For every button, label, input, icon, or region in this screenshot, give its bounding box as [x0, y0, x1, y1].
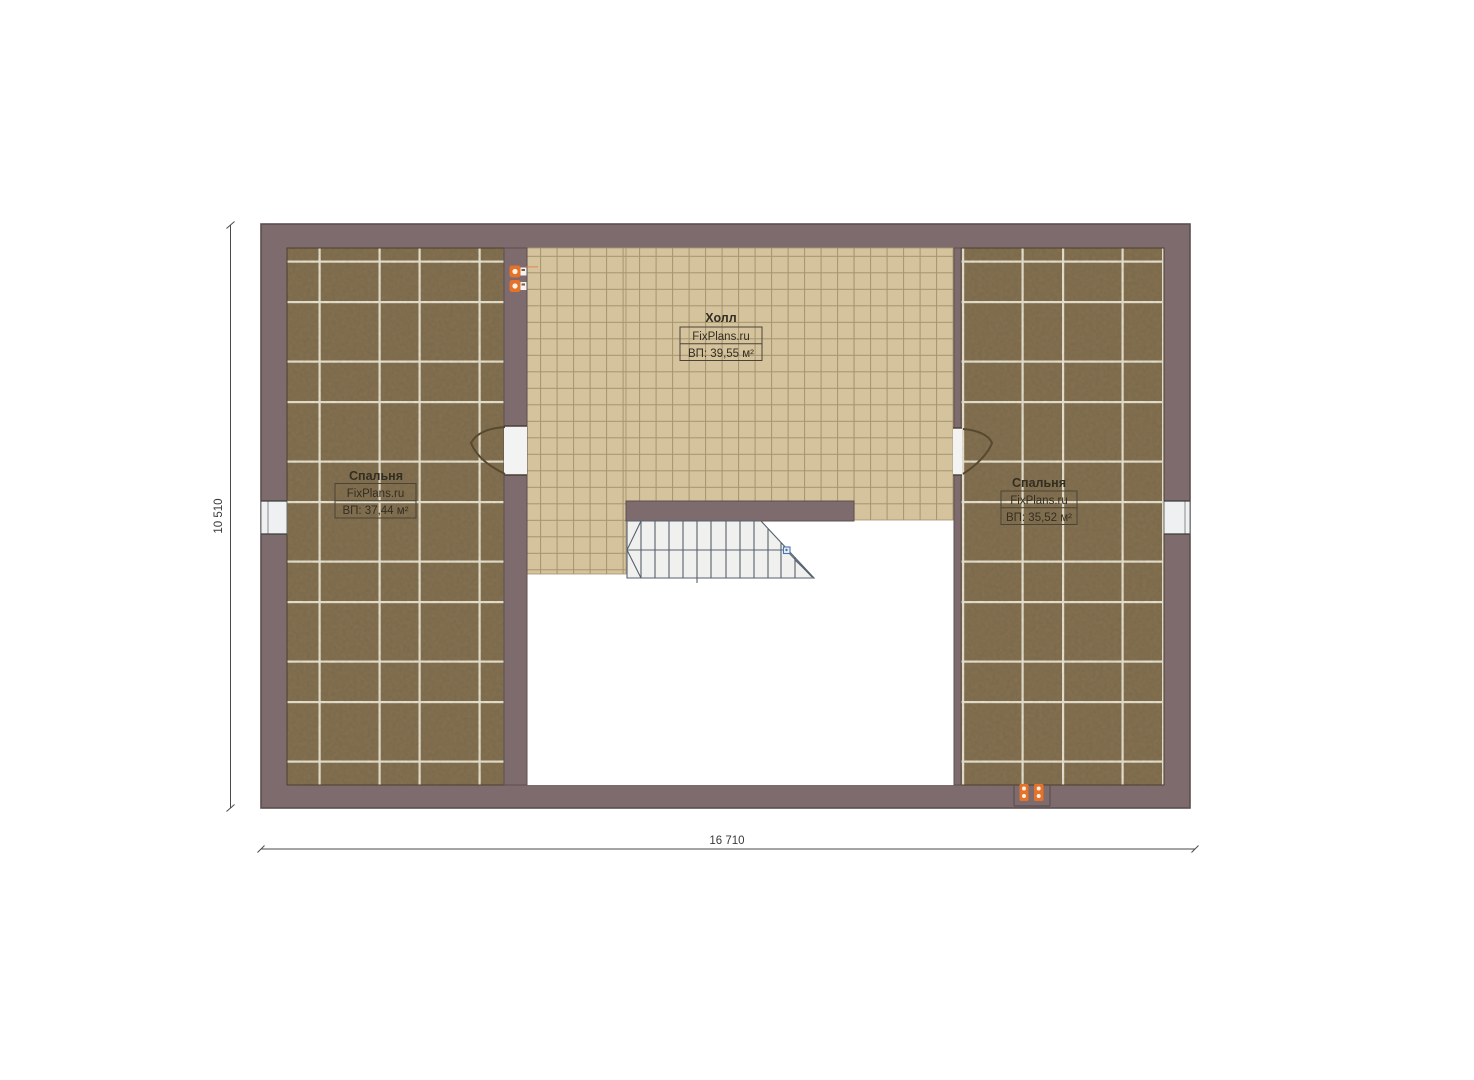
svg-text:FixPlans.ru: FixPlans.ru [347, 488, 405, 500]
svg-text:FixPlans.ru: FixPlans.ru [692, 331, 750, 343]
svg-text:10 510: 10 510 [213, 498, 225, 533]
svg-text:Спальня: Спальня [349, 469, 403, 483]
svg-text:FixPlans.ru: FixPlans.ru [1010, 495, 1068, 507]
svg-text:ВП: 37,44 м²: ВП: 37,44 м² [342, 505, 408, 517]
svg-text:ВП: 35,52 м²: ВП: 35,52 м² [1006, 512, 1072, 524]
svg-text:Спальня: Спальня [1012, 476, 1066, 490]
svg-text:Холл: Холл [705, 311, 736, 325]
svg-text:ВП: 39,55 м²: ВП: 39,55 м² [688, 348, 754, 360]
svg-text:16 710: 16 710 [709, 835, 744, 847]
